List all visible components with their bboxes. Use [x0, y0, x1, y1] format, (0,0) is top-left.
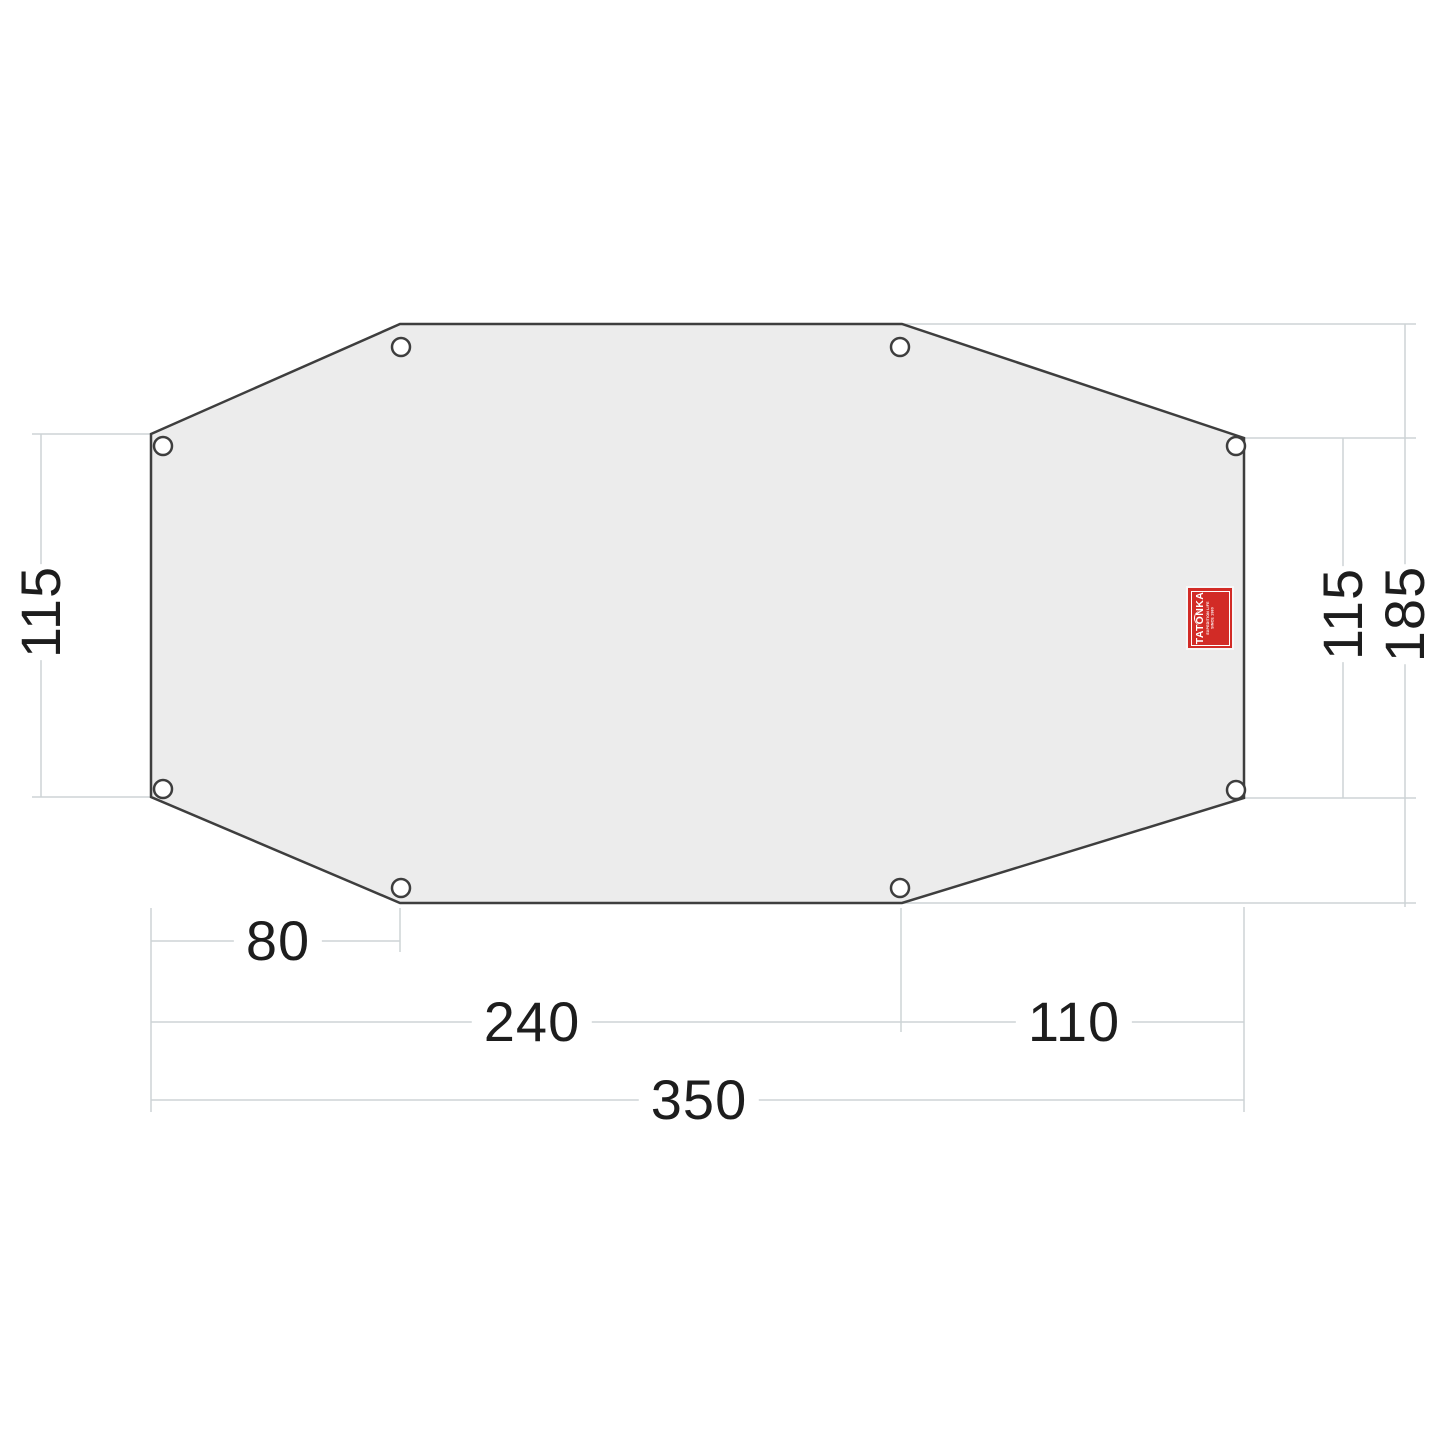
tatonka-tagline-line2: SINCE 1980: [1211, 601, 1216, 634]
grommet-upper-left: [392, 338, 410, 356]
dimension-label-left-height: 115: [1, 564, 81, 660]
grommet-bottom-left: [154, 780, 172, 798]
grommet-upper-right: [891, 338, 909, 356]
tatonka-brand-name: TATONKA: [1195, 592, 1207, 644]
footprint-shape: [151, 324, 1244, 903]
tatonka-label-content: TATONKA EXPEDITION LIFE SINCE 1980: [1190, 590, 1230, 646]
grommet-top-left: [154, 437, 172, 455]
grommet-bottom-right: [1227, 781, 1245, 799]
dimension-label-bottom-inner: 240: [472, 994, 592, 1050]
dimension-label-bottom-offset: 80: [234, 913, 322, 969]
dimension-label-total-height: 185: [1365, 564, 1445, 664]
dimension-drawing-canvas: 115 115 185 80 240 110 350 TATONKA EXPED…: [0, 0, 1445, 1445]
tatonka-tagline: EXPEDITION LIFE SINCE 1980: [1206, 601, 1215, 634]
footprint-diagram-svg: [0, 0, 1445, 1445]
grommet-lower-left: [392, 879, 410, 897]
grommet-top-right: [1227, 437, 1245, 455]
dimension-label-total-width: 350: [639, 1072, 759, 1128]
tatonka-brand-label: TATONKA EXPEDITION LIFE SINCE 1980: [1188, 588, 1232, 648]
grommet-lower-right: [891, 879, 909, 897]
dimension-label-bottom-right-segment: 110: [1016, 994, 1132, 1050]
